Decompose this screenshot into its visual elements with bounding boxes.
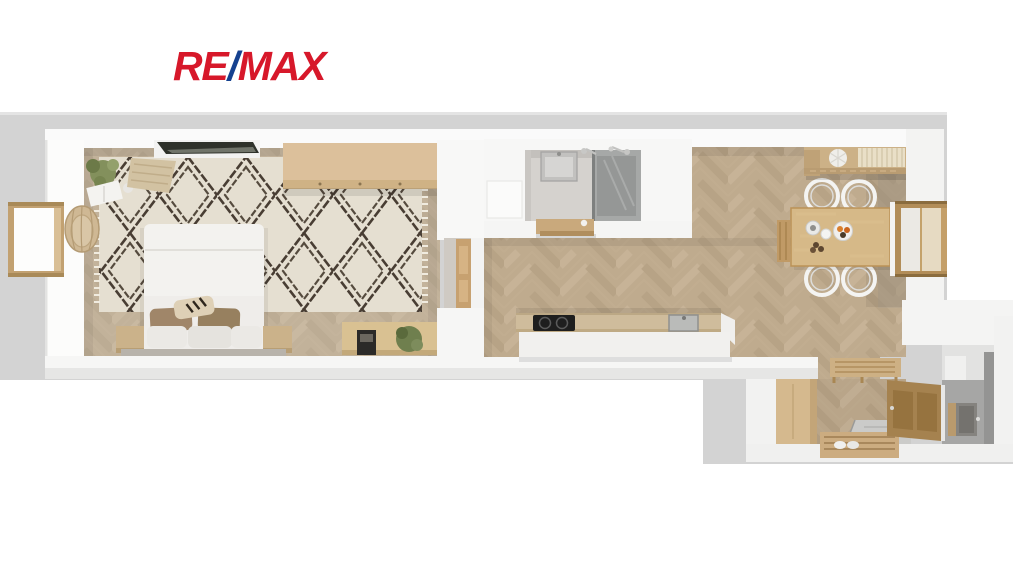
- svg-text:RE/MAX: RE/MAX: [173, 43, 329, 89]
